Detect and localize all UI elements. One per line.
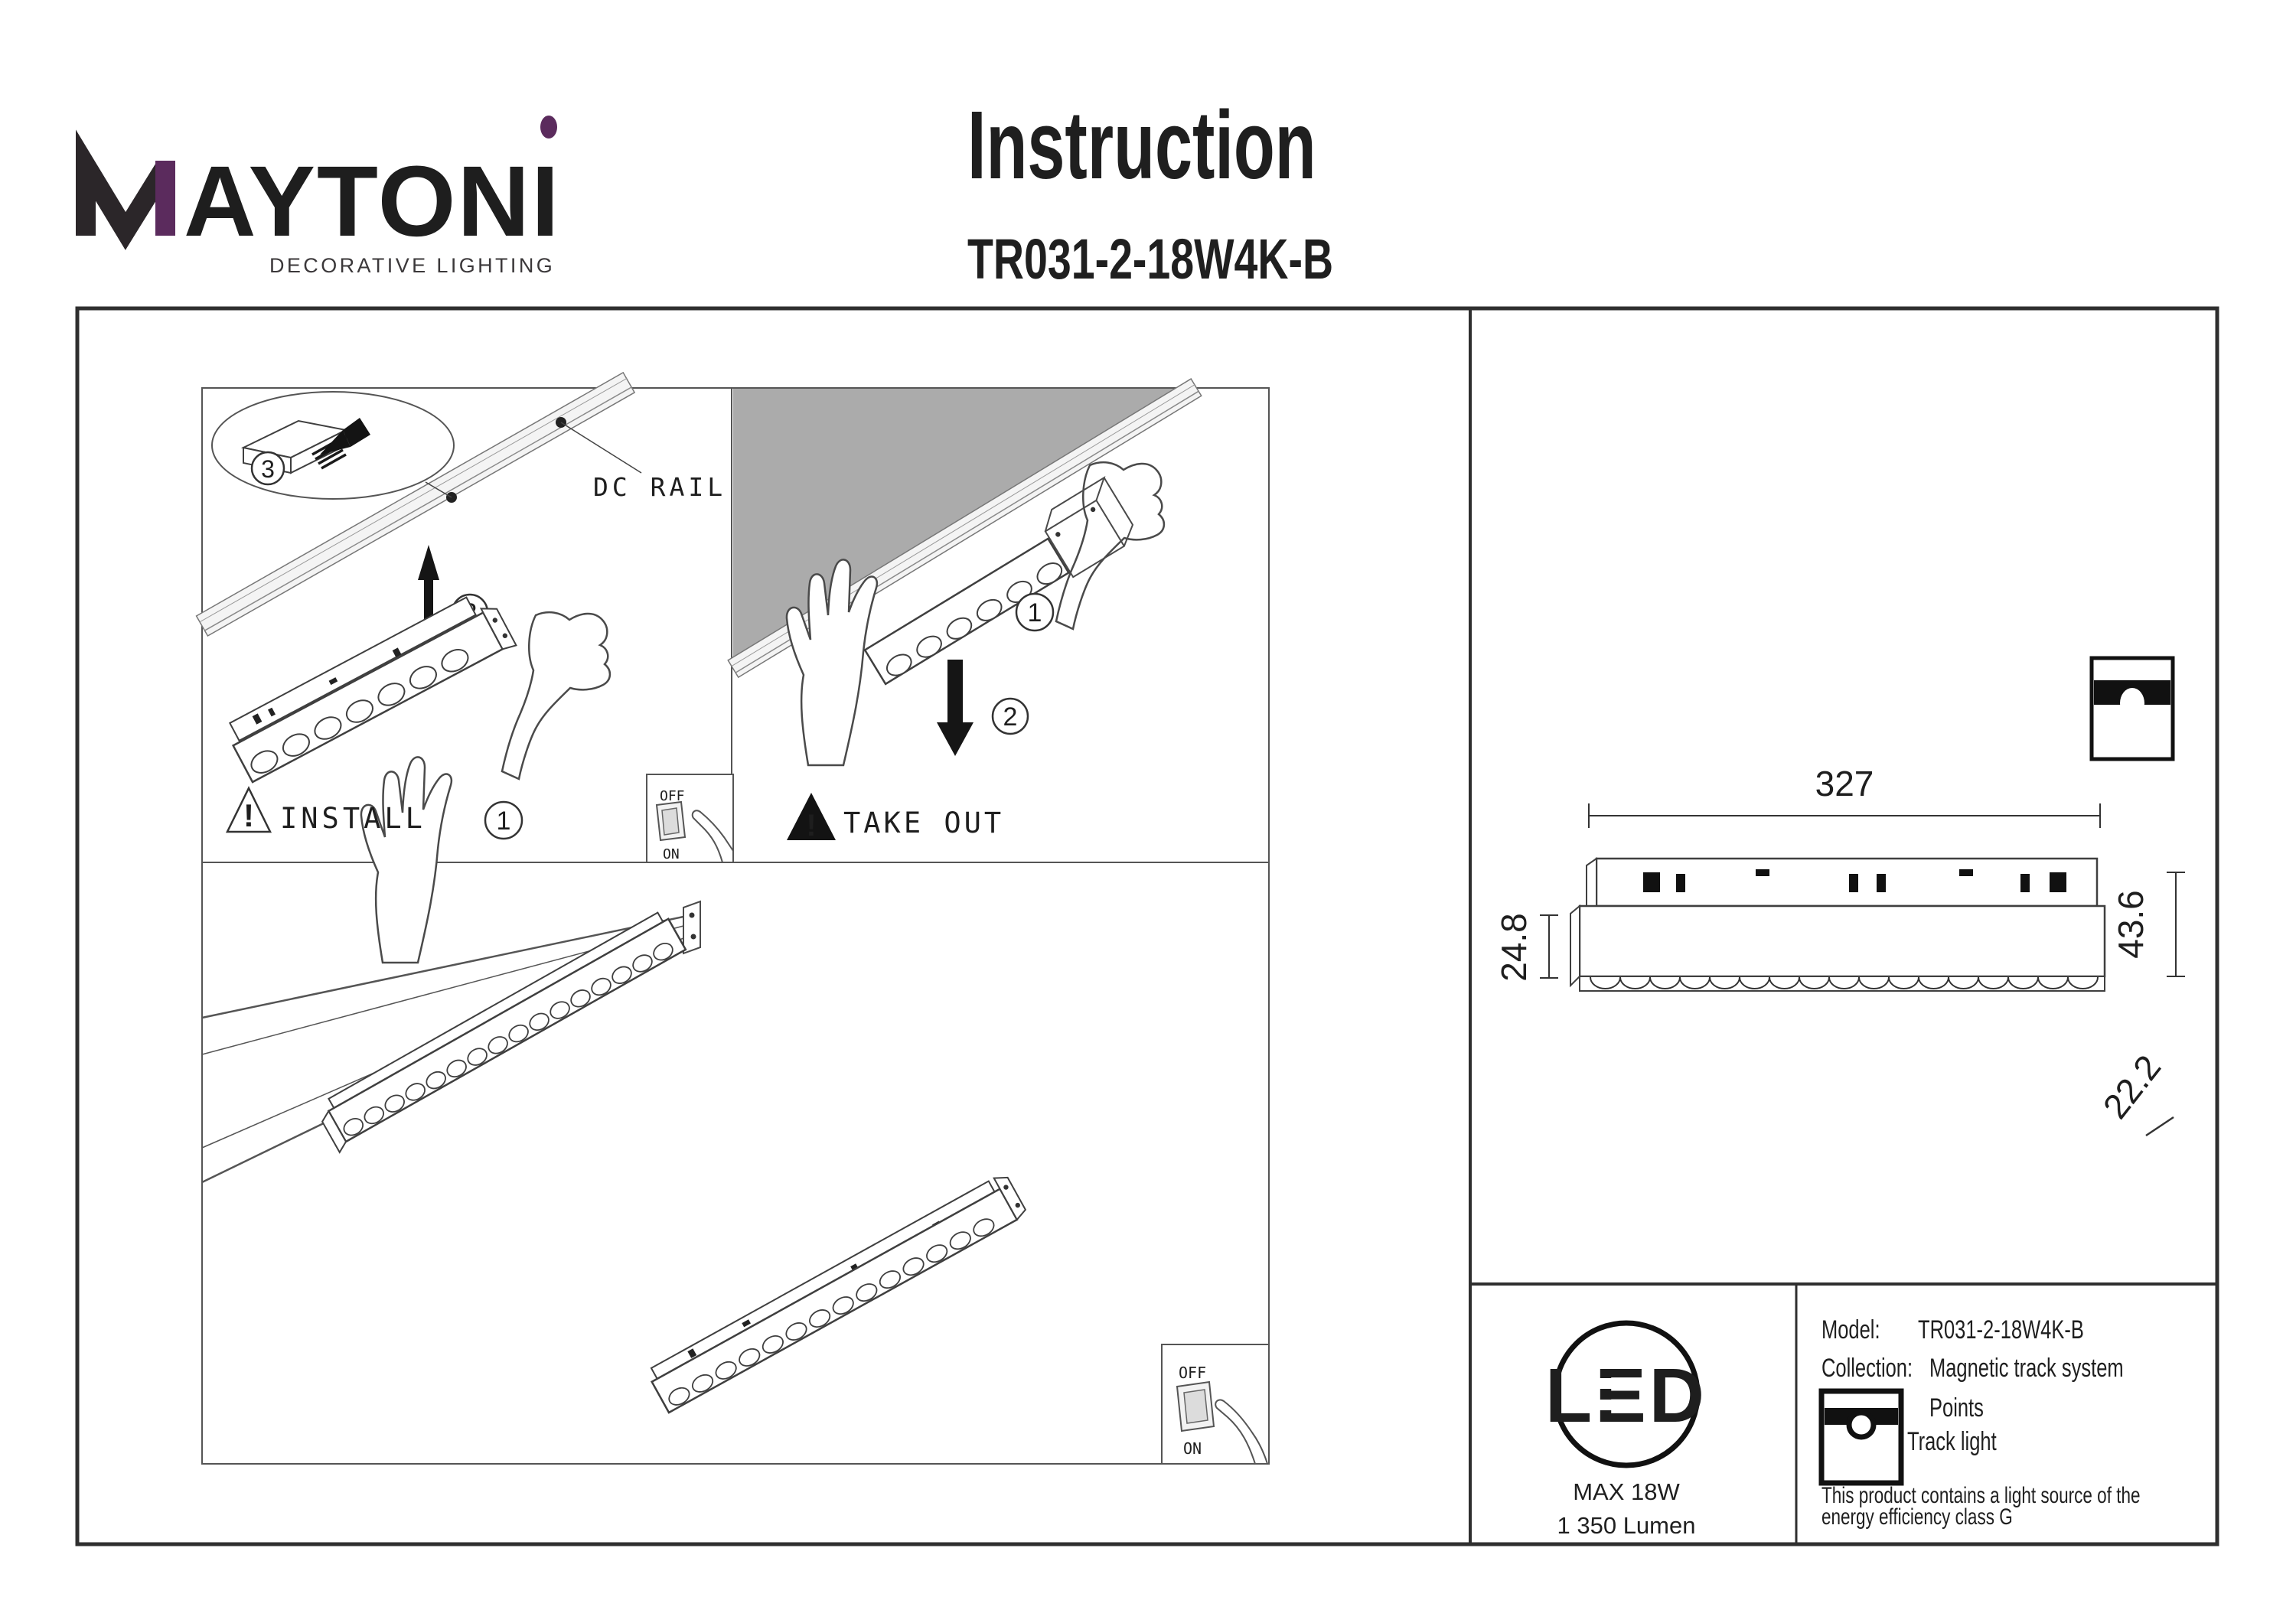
takeout-panel: 1 2 ! TAKE OUT	[728, 379, 1201, 842]
lens-scallops	[1590, 977, 2098, 989]
detached-track-light	[646, 1172, 1028, 1413]
fixture-front-view	[1570, 859, 2105, 991]
model-value: TR031-2-18W4K-B	[1918, 1315, 2139, 1345]
down-arrow-icon	[937, 660, 974, 756]
dimension-panel: 327 24.8	[1494, 658, 2185, 1136]
total-height-dim-line	[2167, 872, 2185, 976]
install-panel: 3 DC RAIL 2	[197, 373, 733, 963]
length-dimension: 327	[1815, 764, 1874, 803]
depth-dim-tick	[2146, 1117, 2174, 1136]
collection-label: Collection:	[1821, 1354, 1943, 1383]
led-e-gap	[1598, 1378, 1649, 1389]
overview-switch-inset: OFF ON	[1162, 1344, 1269, 1464]
switch-off-label: OFF	[1179, 1364, 1206, 1382]
mounted-track-light	[314, 910, 689, 1152]
points-type-icon	[1821, 1391, 1901, 1483]
length-dim-line	[1589, 803, 2100, 828]
front-height-dimension: 24.8	[1494, 913, 1534, 982]
led-badge-text: LED	[1545, 1353, 1707, 1439]
rail-end-cap	[683, 901, 700, 953]
energy-note-line2: energy efficiency class G	[1821, 1504, 2076, 1531]
total-height-dimension: 43.6	[2111, 890, 2151, 959]
track-light-fixture	[223, 587, 517, 784]
rail-leader-line	[561, 422, 641, 473]
step-1-number: 1	[497, 807, 511, 836]
warning-exclamation: !	[806, 809, 816, 842]
right-hand-sketch	[502, 612, 610, 779]
front-height-dim-line	[1540, 915, 1558, 978]
install-switch-inset: OFF ON	[647, 774, 733, 862]
end-cap-icon	[2092, 658, 2173, 759]
model-label: Model:	[1821, 1315, 1900, 1345]
left-hand-sketch	[361, 757, 452, 963]
instruction-sheet: AYTONI DECORATIVE LIGHTING Instruction T…	[0, 0, 2296, 1623]
type-value: Track light	[1907, 1427, 2027, 1457]
dc-rail-label: DC RAIL	[593, 472, 726, 502]
step-1-number: 1	[1028, 598, 1042, 627]
step-2-number: 2	[1003, 702, 1018, 732]
switch-on-label: ON	[663, 846, 680, 862]
rocker-face	[1184, 1390, 1208, 1423]
takeout-caption: TAKE OUT	[843, 807, 1004, 839]
led-e-gap	[1598, 1400, 1649, 1410]
overview-panel: OFF ON	[202, 901, 1269, 1464]
led-badge: LED	[1545, 1323, 1707, 1465]
install-caption: INSTALL	[280, 802, 426, 835]
family-value: Points	[1929, 1393, 2002, 1423]
collection-value: Magnetic track system	[1929, 1354, 2188, 1383]
connector-detail-bubble: 3	[212, 392, 454, 499]
switch-on-label: ON	[1183, 1439, 1202, 1458]
depth-dimension: 22.2	[2095, 1048, 2168, 1126]
luminous-flux: 1 350 Lumen	[1550, 1512, 1703, 1540]
warning-exclamation: !	[243, 797, 254, 833]
step-3-number: 3	[261, 455, 275, 483]
rocker-face	[662, 808, 679, 835]
max-power: MAX 18W	[1550, 1478, 1703, 1506]
